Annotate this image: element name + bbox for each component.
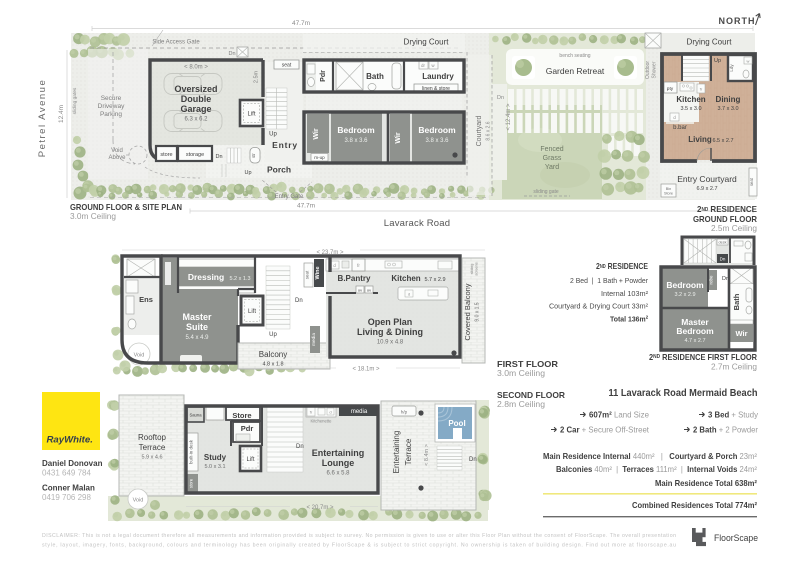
svg-text:Combined Residences Total 774m: Combined Residences Total 774m² [632,501,757,510]
svg-text:Bedroom: Bedroom [337,125,375,135]
svg-text:sliding gates: sliding gates [72,87,78,114]
svg-text:GROUND FLOOR & SITE PLAN: GROUND FLOOR & SITE PLAN [70,202,182,212]
svg-text:Dn: Dn [296,444,304,450]
svg-text:Balconies 40m² | Terraces 11: Balconies 40m² | Terraces 111m² | Intern… [556,465,757,474]
svg-text:Rooftop: Rooftop [138,433,167,442]
svg-text:Wir: Wir [313,128,320,139]
svg-text:Bath: Bath [732,293,741,310]
svg-text:Entry Courtyard: Entry Courtyard [677,174,737,184]
svg-text:Dn: Dn [295,298,303,304]
svg-text:Entertaining: Entertaining [392,431,401,474]
svg-text:style, layout, imagery, fonts,: style, layout, imagery, fonts, backgroun… [42,543,676,549]
svg-text:3.8 x 3.6: 3.8 x 3.6 [344,138,368,144]
svg-text:4.8 x 1.8: 4.8 x 1.8 [262,362,283,368]
svg-text:3.5 x 3.0: 3.5 x 3.0 [680,106,701,112]
svg-text:Ens: Ens [139,295,153,304]
svg-text:Above: Above [108,155,126,161]
svg-text:Bedroom: Bedroom [676,326,714,336]
svg-text:Driveway: Driveway [98,103,125,110]
svg-text:Side Access Gate: Side Access Gate [152,40,200,46]
svg-text:Pdr: Pdr [241,424,254,433]
svg-text:b.bar: b.bar [673,125,687,131]
svg-text:5.0 x 3.1: 5.0 x 3.1 [204,464,225,470]
svg-text:Drying Court: Drying Court [404,38,450,47]
svg-text:Lift: Lift [247,112,255,118]
svg-text:Dn: Dn [215,154,222,160]
svg-text:Parking: Parking [100,111,122,118]
svg-text:sliding gate: sliding gate [533,189,559,195]
svg-text:Terrace: Terrace [139,443,166,452]
svg-text:SECOND FLOOR: SECOND FLOOR [497,390,565,400]
svg-text:Main Residence Internal 440m²: Main Residence Internal 440m² | Courtyar… [543,452,757,461]
svg-text:< 18.1m >: < 18.1m > [352,367,380,373]
svg-text:Shower: Shower [652,61,658,78]
svg-text:< 23.7m >: < 23.7m > [316,250,344,256]
svg-text:3.8 x 3.6: 3.8 x 3.6 [425,138,449,144]
svg-text:3.7 x 3.0: 3.7 x 3.0 [717,106,738,112]
svg-text:6.9 x 2.7: 6.9 x 2.7 [696,186,717,192]
svg-text:Oversized: Oversized [174,84,217,94]
svg-text:Laundry: Laundry [422,72,454,81]
svg-text:Grass: Grass [543,155,562,162]
svg-text:Up: Up [244,170,251,176]
svg-text:2 Bed | 1 Bath + Powder: 2 Bed | 1 Bath + Powder [570,276,648,285]
svg-text:Bath: Bath [366,72,384,81]
svg-text:seat: seat [305,270,310,279]
svg-text:h/p: h/p [401,410,408,415]
svg-text:Lavarack Road: Lavarack Road [384,218,451,229]
svg-text:3.0m Ceiling: 3.0m Ceiling [70,212,116,221]
svg-text:4.7 x 2.7: 4.7 x 2.7 [684,338,705,344]
svg-text:Petrel Avenue: Petrel Avenue [37,79,48,157]
svg-text:NORTH: NORTH [719,16,756,26]
svg-text:Wine: Wine [315,266,321,279]
svg-text:Void: Void [133,498,144,504]
svg-text:Dn: Dn [228,51,235,57]
svg-text:Up: Up [269,332,277,338]
svg-text:media: media [351,409,368,415]
svg-text:Kitchen: Kitchen [391,274,420,283]
svg-text:Living & Dining: Living & Dining [357,327,423,337]
svg-text:6.5 x 2.7: 6.5 x 2.7 [712,138,733,144]
svg-text:Store: Store [664,192,673,196]
svg-text:< 20.7m >: < 20.7m > [306,505,334,511]
svg-text:store: store [189,478,194,488]
svg-text:47.7m: 47.7m [292,20,310,27]
svg-text:Entertaining: Entertaining [312,448,365,458]
svg-text:sliding: sliding [470,264,474,275]
svg-text:5.9 x 4.6: 5.9 x 4.6 [141,455,162,461]
svg-text:Porch: Porch [267,165,291,175]
svg-text:Dn: Dn [497,95,504,101]
svg-text:media: media [311,333,317,346]
svg-text:9.0 x 1.5: 9.0 x 1.5 [475,302,481,321]
svg-text:607m² Land Size: 607m² Land Size [589,411,649,420]
svg-text:2 Bath + 2 Powder: 2 Bath + 2 Powder [693,426,758,435]
svg-text:Covered Balcony: Covered Balcony [463,283,472,340]
svg-text:0431 649 784: 0431 649 784 [42,469,91,478]
svg-text:Balcony: Balcony [259,350,287,359]
svg-text:3.2 x 2.9: 3.2 x 2.9 [674,292,695,298]
svg-text:0419 706 298: 0419 706 298 [42,493,91,502]
svg-text:Courtyard & Drying Court 33m²: Courtyard & Drying Court 33m² [549,302,649,311]
svg-text:Conner Malan: Conner Malan [42,484,95,493]
svg-text:2 Car + Secure Off-Street: 2 Car + Secure Off-Street [560,426,650,435]
svg-text:Living: Living [688,135,712,144]
svg-text:Void: Void [134,353,145,359]
svg-text:Sauna: Sauna [189,413,202,418]
svg-text:ov: ov [358,288,362,293]
svg-text:Kitchenette: Kitchenette [311,419,333,424]
svg-text:Open Plan: Open Plan [368,317,413,327]
svg-text:seat: seat [282,63,292,69]
svg-text:Study: Study [204,453,227,462]
svg-text:Courtyard: Courtyard [476,116,483,147]
svg-text:Dn: Dn [720,257,726,262]
svg-text:Store: Store [232,411,251,420]
svg-text:d: d [329,410,331,415]
svg-text:Outdoor: Outdoor [645,61,651,79]
svg-text:2.8m Ceiling: 2.8m Ceiling [497,400,545,409]
svg-text:Double: Double [181,94,212,104]
svg-text:Bin: Bin [666,187,672,191]
svg-text:6.6 x 5.8: 6.6 x 5.8 [326,471,350,477]
svg-text:str: str [251,153,256,158]
svg-text:w: w [747,59,750,64]
svg-text:12.4m: 12.4m [58,105,65,123]
svg-text:Fenced: Fenced [540,146,563,153]
svg-text:< 8.0m >: < 8.0m > [184,65,208,71]
svg-text:seat: seat [749,177,754,186]
svg-text:desk: desk [718,241,726,245]
svg-text:dr: dr [421,63,425,68]
svg-text:2ND RESIDENCE FIRST FLOOR: 2ND RESIDENCE FIRST FLOOR [649,352,757,362]
svg-text:5.2 x 1.3: 5.2 x 1.3 [229,276,250,282]
svg-text:Total 136m²: Total 136m² [610,315,648,324]
svg-text:Entry: Entry [272,140,298,150]
svg-text:Master: Master [182,312,212,322]
svg-text:Pool: Pool [448,419,465,428]
svg-text:DISCLAIMER: This is not a lega: DISCLAIMER: This is not a legal document… [42,533,676,539]
svg-text:Dressing: Dressing [188,272,224,282]
svg-text:Pdr: Pdr [320,70,327,82]
svg-text:47.7m: 47.7m [297,203,315,210]
svg-text:robe: robe [709,275,714,285]
svg-text:< 12.4m >: < 12.4m > [506,103,512,131]
svg-text:Up: Up [269,132,277,138]
svg-text:< 8.4m >: < 8.4m > [424,444,430,466]
svg-text:Dining: Dining [716,95,741,104]
svg-text:11 Lavarack Road Mermaid Beach: 11 Lavarack Road Mermaid Beach [609,388,758,399]
svg-text:m-up: m-up [314,155,325,160]
svg-text:10.9 x 4.8: 10.9 x 4.8 [377,340,404,346]
svg-text:screens: screens [475,262,479,275]
svg-text:Yard: Yard [545,164,559,171]
svg-text:Up: Up [714,58,721,64]
svg-text:RayWhite.: RayWhite. [47,435,93,446]
svg-text:Wir: Wir [395,132,402,143]
svg-text:Entry Gate: Entry Gate [275,194,304,200]
svg-text:Bedroom: Bedroom [666,280,704,290]
svg-text:Ldy: Ldy [729,64,734,72]
svg-text:2.5m Ceiling: 2.5m Ceiling [711,224,757,233]
svg-text:Suite: Suite [186,322,208,332]
svg-text:Lounge: Lounge [322,458,355,468]
svg-text:Secure: Secure [101,95,122,102]
svg-text:Internal 103m²: Internal 103m² [601,289,649,298]
svg-text:Daniel Donovan: Daniel Donovan [42,459,103,468]
svg-text:2.7m Ceiling: 2.7m Ceiling [711,363,757,372]
svg-text:Dn: Dn [469,457,477,463]
svg-text:5.4 x 4.9: 5.4 x 4.9 [185,335,209,341]
svg-text:6.3 x 6.2: 6.3 x 6.2 [184,117,208,123]
svg-text:pty: pty [667,86,674,92]
svg-text:Lift: Lift [248,309,256,315]
svg-text:Main Residence Total 638m²: Main Residence Total 638m² [655,479,757,488]
svg-text:2.5m: 2.5m [254,70,260,83]
svg-text:ov: ov [367,288,371,293]
svg-text:Kitchen: Kitchen [676,95,705,104]
svg-text:Bedroom: Bedroom [418,125,456,135]
svg-text:FIRST FLOOR: FIRST FLOOR [497,359,558,369]
svg-text:8.6 x 2.6: 8.6 x 2.6 [486,121,492,140]
svg-text:Terrace: Terrace [404,438,413,465]
svg-text:Lift: Lift [246,457,254,463]
svg-text:Garden Retreat: Garden Retreat [546,66,605,76]
svg-text:5.7 x 2.9: 5.7 x 2.9 [424,277,445,283]
svg-text:Void: Void [111,148,123,154]
svg-text:B.Pantry: B.Pantry [338,274,371,283]
svg-text:storage: storage [186,152,204,158]
svg-text:Wir: Wir [735,329,747,338]
svg-text:GROUND FLOOR: GROUND FLOOR [693,214,757,224]
svg-text:3.0m Ceiling: 3.0m Ceiling [497,369,545,378]
svg-text:FloorScape: FloorScape [714,533,758,543]
svg-text:d: d [408,292,410,297]
svg-text:Garage: Garage [180,104,211,114]
svg-text:Drying Court: Drying Court [687,38,733,47]
svg-text:3 Bed + Study: 3 Bed + Study [708,411,758,420]
svg-text:bench seating: bench seating [559,53,590,59]
svg-text:store: store [160,152,172,158]
svg-text:built-in desk: built-in desk [189,439,194,464]
